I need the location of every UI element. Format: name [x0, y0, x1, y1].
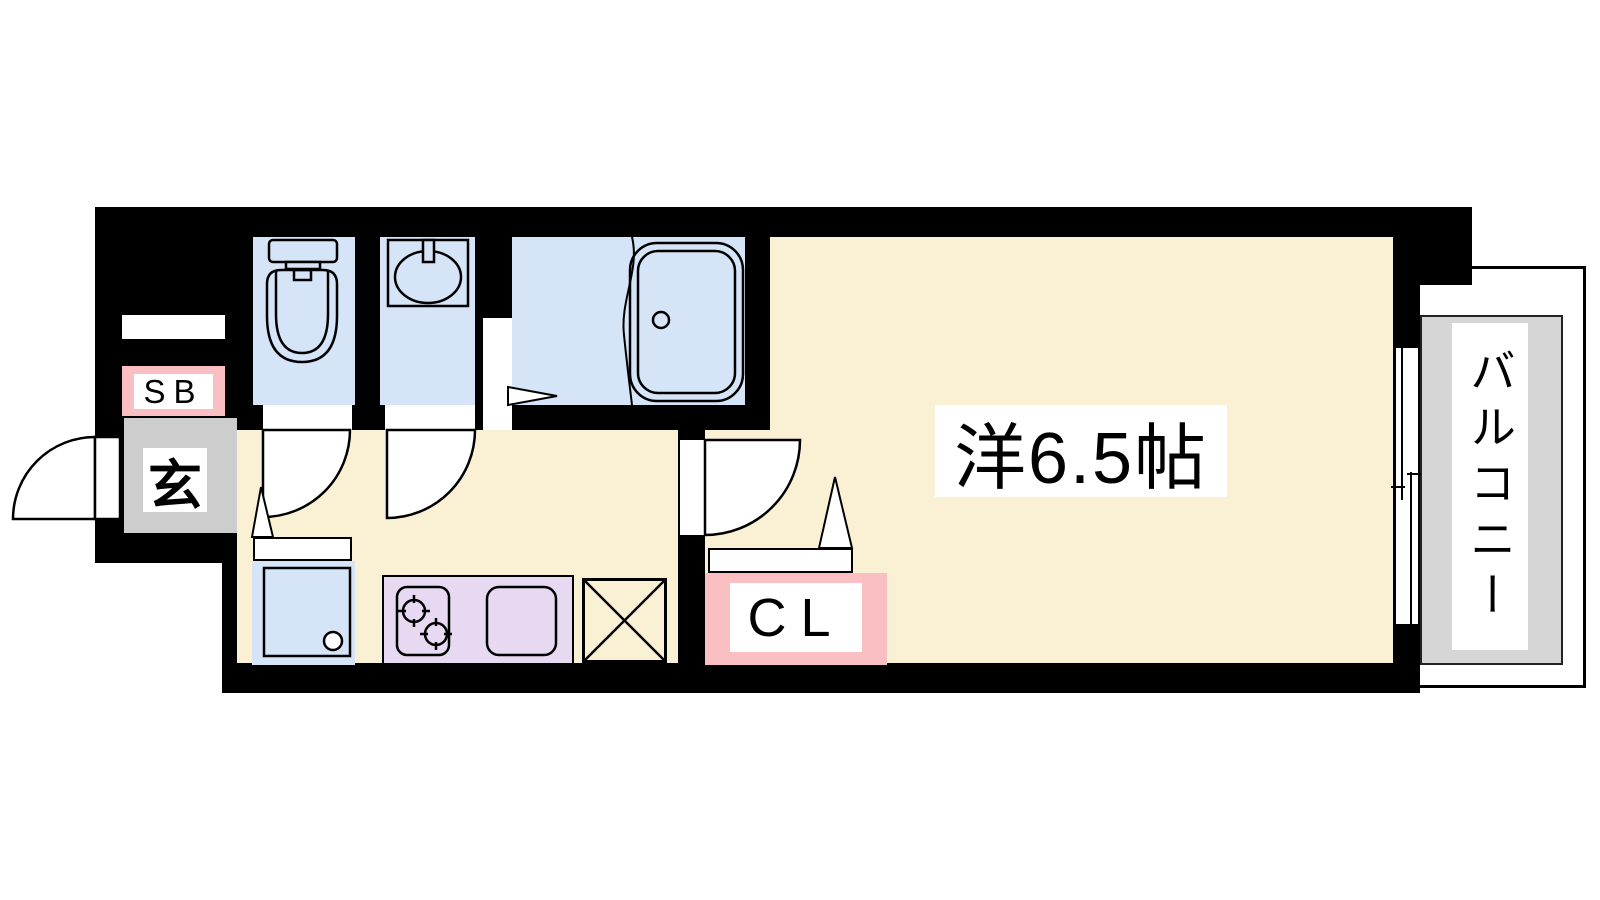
- balcony-label: バルコニー: [1452, 323, 1528, 650]
- wall-left: [95, 207, 125, 563]
- refrigerator-space: [582, 578, 667, 663]
- closet-opening: [708, 548, 853, 573]
- kitchen-counter: [382, 575, 574, 665]
- toilet-door-opening: [263, 405, 352, 431]
- balcony-label-text: バルコニー: [1457, 347, 1523, 627]
- washer-pan: [252, 561, 355, 665]
- sliding-window: [1393, 348, 1420, 624]
- main-room-label: 洋6.5帖: [935, 405, 1227, 497]
- entrance-area: 玄: [124, 418, 237, 533]
- entrance-label: 玄: [143, 448, 207, 512]
- washroom-door-opening: [385, 405, 475, 431]
- mainroom-door-opening: [680, 440, 705, 535]
- bathroom-door-opening: [483, 318, 512, 430]
- closet-label: CL: [730, 583, 862, 652]
- entrance-window: [122, 315, 225, 339]
- floor-plan: SB 玄 CL 洋6.5帖 バルコニー: [0, 0, 1600, 900]
- wall-bottom: [222, 663, 1420, 693]
- closet-area: CL: [705, 573, 887, 665]
- toilet-room: [253, 237, 355, 405]
- shoe-box-label: SB: [134, 374, 213, 409]
- wall-right-above-window: [1393, 237, 1420, 350]
- washroom: [380, 237, 475, 405]
- wall-top: [95, 207, 1443, 237]
- bathroom: [512, 237, 745, 405]
- wall-right-below-window: [1393, 617, 1420, 693]
- shoe-box-area: SB: [122, 366, 225, 416]
- washer-door-bar: [253, 537, 352, 561]
